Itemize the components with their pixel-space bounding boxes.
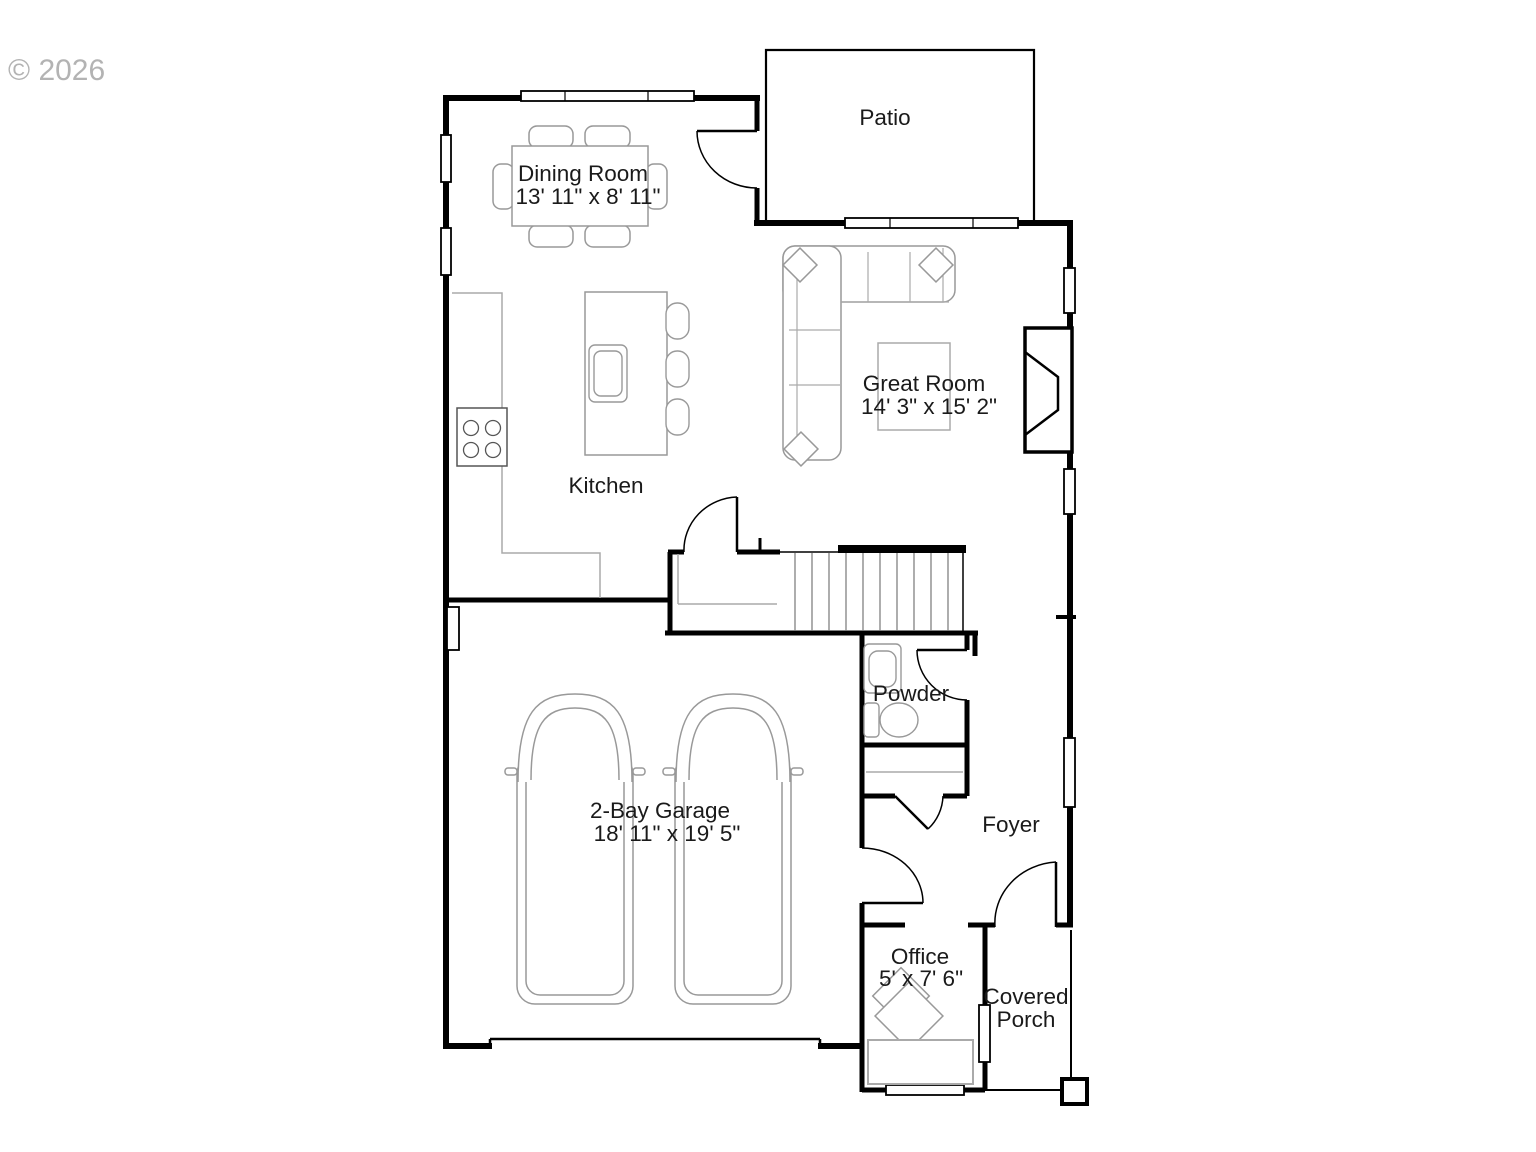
dining-chair bbox=[585, 126, 630, 148]
patio-outline bbox=[766, 50, 1034, 223]
island-sink bbox=[589, 345, 627, 402]
toilet-bowl bbox=[880, 703, 918, 737]
front-door bbox=[995, 862, 1056, 927]
window-foyer-right bbox=[1064, 738, 1075, 807]
kitchen-label: Kitchen bbox=[568, 473, 643, 498]
great-room-furniture bbox=[783, 246, 955, 466]
dining-chair bbox=[529, 126, 573, 148]
dining-chair bbox=[529, 225, 573, 247]
fireplace bbox=[1025, 328, 1072, 452]
office-desk bbox=[868, 1040, 973, 1084]
toilet-tank bbox=[864, 703, 879, 737]
window-dining-left-2 bbox=[441, 228, 451, 275]
window-dining-left-1 bbox=[441, 135, 451, 182]
floor-plan-page: © 2026 Patio Dining Room 13' 11" x 8' 11… bbox=[0, 0, 1536, 1152]
garage-dimensions: 18' 11" x 19' 5" bbox=[594, 821, 741, 846]
patio-door bbox=[697, 131, 757, 188]
dining-chair bbox=[585, 225, 630, 247]
dining-room-label: Dining Room bbox=[518, 161, 648, 186]
window-garage-left bbox=[447, 607, 459, 650]
covered-porch-label-line2: Porch bbox=[997, 1007, 1056, 1032]
patio-label: Patio bbox=[859, 105, 910, 130]
stove bbox=[457, 408, 507, 466]
covered-porch-label-line1: Covered bbox=[983, 984, 1068, 1009]
kitchen-fixtures bbox=[452, 292, 689, 598]
coat-closet-door bbox=[895, 796, 943, 829]
pantry-door bbox=[684, 497, 737, 552]
great-room-dimensions: 14' 3" x 15' 2" bbox=[861, 394, 997, 419]
stair-handrail bbox=[838, 545, 966, 553]
garage-label: 2-Bay Garage bbox=[590, 798, 730, 823]
office-dimensions: 5' x 7' 6" bbox=[879, 966, 963, 991]
garage-entry-door bbox=[862, 848, 923, 903]
powder-label: Powder bbox=[873, 681, 950, 706]
car bbox=[505, 694, 645, 1004]
window-great-room-top bbox=[845, 218, 1018, 228]
window-office-south bbox=[886, 1085, 964, 1095]
bar-stool bbox=[666, 351, 689, 387]
copyright-watermark: © 2026 bbox=[8, 54, 105, 87]
bar-stool bbox=[666, 399, 689, 435]
floor-plan-drawing: © 2026 Patio Dining Room 13' 11" x 8' 11… bbox=[0, 0, 1536, 1152]
window-dining-top bbox=[521, 91, 694, 101]
dining-chair bbox=[493, 164, 514, 209]
foyer-label: Foyer bbox=[982, 812, 1040, 837]
bar-stool bbox=[666, 303, 689, 339]
window-office-east bbox=[979, 1005, 990, 1062]
great-room-label: Great Room bbox=[863, 371, 986, 396]
window-great-room-right-1 bbox=[1064, 268, 1075, 313]
car bbox=[663, 694, 803, 1004]
porch-post bbox=[1062, 1079, 1087, 1104]
window-great-room-right-2 bbox=[1064, 469, 1075, 514]
staircase bbox=[780, 545, 966, 633]
dining-room-dimensions: 13' 11" x 8' 11" bbox=[515, 184, 660, 209]
sectional-sofa bbox=[783, 246, 955, 466]
